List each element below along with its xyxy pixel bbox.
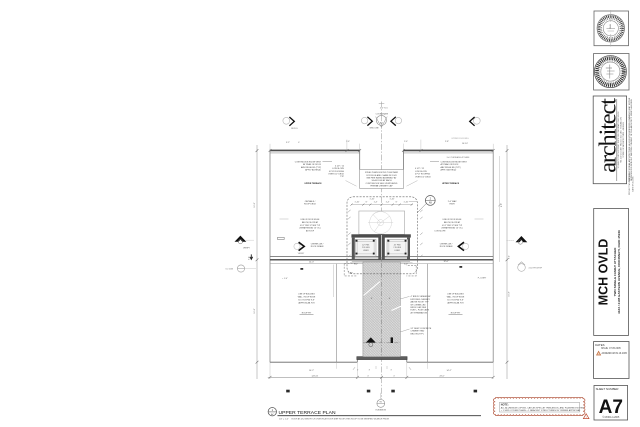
svg-text:5'-0": 5'-0": [354, 263, 358, 265]
svg-text:PREFAB CHIMNEY CAP: PREFAB CHIMNEY CAP: [370, 185, 393, 188]
svg-text:1/4" = 1'-0" ROOF AT 4/12: 1/4" = 1'-0" ROOF AT 4/12 MIN PITCH OVER…: [279, 417, 390, 420]
svg-text:DATES: DATES: [595, 343, 604, 347]
svg-text:16'-8": 16'-8": [254, 202, 256, 207]
svg-text:8'-0": 8'-0": [501, 203, 503, 207]
svg-text:STUDIO OF ARCHITECTURE + DESIG: STUDIO OF ARCHITECTURE + DESIGN: [622, 122, 625, 158]
svg-text:9'-2": 9'-2": [286, 142, 290, 144]
svg-text:ABV RIDGE BD (TYP): ABV RIDGE BD (TYP): [441, 166, 461, 169]
svg-text:BRICK CAP, REF: BRICK CAP, REF: [411, 306, 427, 309]
svg-text:CHIMNEY PAD: CHIMNEY PAD: [411, 330, 425, 333]
svg-text:16'-8": 16'-8": [509, 291, 511, 296]
svg-text:LOW SLOPE: LOW SLOPE: [435, 231, 447, 233]
svg-text:B.O. ROOF AT 9'-8": B.O. ROOF AT 9'-8": [298, 298, 315, 301]
svg-text:ROOF PIT: ROOF PIT: [451, 312, 461, 314]
svg-text:LINE OF BUILDING: LINE OF BUILDING: [447, 294, 464, 296]
svg-text:(SHEATHING AT 16" OC): (SHEATHING AT 16" OC): [442, 227, 463, 230]
svg-text:4 1/2" PER 12" MIN TYP: 4 1/2" PER 12" MIN TYP: [300, 225, 321, 227]
svg-text:2'-8": 2'-8": [445, 141, 449, 143]
svg-text:CONTINUOUS RIDGE VENT: CONTINUOUS RIDGE VENT: [295, 161, 322, 163]
svg-text:24" DEEP CONCRETE: 24" DEEP CONCRETE: [411, 328, 432, 330]
svg-text:HIGH: HIGH: [450, 204, 456, 206]
svg-text:2x6 OVERHANG AT RAKE: 2x6 OVERHANG AT RAKE: [447, 156, 470, 159]
svg-text:GRID LINE: GRID LINE: [369, 128, 379, 130]
svg-text:(24'-0"): (24'-0"): [312, 375, 319, 377]
svg-text:(APPROX) AB. FLR: (APPROX) AB. FLR: [447, 301, 464, 304]
svg-text:LINE OF ROOF EDGE: LINE OF ROOF EDGE: [301, 219, 321, 221]
svg-text:ROOF DRAIN: ROOF DRAIN: [440, 245, 453, 248]
svg-text:5'-4": 5'-4": [249, 256, 251, 260]
svg-text:OVERFLOW /: OVERFLOW /: [440, 243, 453, 245]
svg-text:14'-2": 14'-2": [446, 370, 451, 372]
svg-text:1'-10": 1'-10": [355, 202, 360, 204]
svg-text:ELEV + FLUE CAPS: ELEV + FLUE CAPS: [411, 309, 430, 312]
svg-text:42" FBX: 42" FBX: [394, 244, 402, 246]
svg-text:4" BRICK VENEER AT: 4" BRICK VENEER AT: [411, 295, 432, 298]
svg-text:NOTE:: NOTE:: [501, 404, 509, 407]
svg-text:DATE 07.05.2005: DATE 07.05.2005: [631, 177, 634, 192]
svg-text:4 PLY ROOFING: 4 PLY ROOFING: [329, 171, 345, 173]
svg-text:AT PEAK OF ROOF: AT PEAK OF ROOF: [303, 163, 322, 166]
svg-text:24'-0": 24'-0": [439, 375, 444, 377]
svg-text:1'-4": 1'-4": [386, 202, 390, 204]
svg-text:UPPER TERRACE: UPPER TERRACE: [304, 182, 322, 185]
svg-text:16'-8": 16'-8": [254, 308, 256, 313]
svg-text:CAP: CAP: [348, 272, 353, 275]
svg-text:+ 1'-0": + 1'-0": [282, 278, 288, 280]
svg-text:6": 6": [396, 202, 398, 204]
svg-text:AT ROOF: AT ROOF: [306, 230, 315, 233]
svg-text:121 EAST FOURTH STREET SUITE 1: 121 EAST FOURTH STREET SUITE 100 CINCINN…: [617, 111, 620, 168]
svg-text:© MODA 4-2005: © MODA 4-2005: [602, 416, 620, 419]
svg-text:W/ CORBELLED: W/ CORBELLED: [411, 304, 427, 306]
svg-text:LINE OF ROOF EDGE: LINE OF ROOF EDGE: [443, 219, 463, 221]
svg-text:ABOVE ROOF, TYP: ABOVE ROOF, TYP: [411, 301, 430, 304]
svg-text:ADDENDUM 09.16.2005: ADDENDUM 09.16.2005: [602, 352, 628, 355]
svg-text:ALL ALUMINUM COPING, CAP, AS S: ALL ALUMINUM COPING, CAP, AS SPEC AT TRI…: [501, 406, 585, 409]
svg-text:5'-0": 5'-0": [404, 263, 408, 265]
svg-text:4163 / 4165 EASTERN AVENUE, CI: 4163 / 4165 EASTERN AVENUE, CINCINNATI, …: [617, 230, 621, 314]
svg-text:CATWALK /: CATWALK /: [305, 200, 316, 203]
svg-text:MIN FIRE RATED ASSEMBLY AT: MIN FIRE RATED ASSEMBLY AT: [367, 177, 398, 180]
svg-text:SHEET NUMBER: SHEET NUMBER: [596, 387, 619, 391]
svg-text:(SHEATHING AT 16" OC): (SHEATHING AT 16" OC): [300, 227, 321, 230]
svg-text:PROJECT NO 0434 MCH: PROJECT NO 0434 MCH: [629, 173, 631, 195]
svg-text:LOW SLOPE: LOW SLOPE: [415, 171, 427, 173]
svg-text:TYP: TYP: [340, 176, 345, 178]
svg-text:2 FLUES: 2 FLUES: [393, 247, 401, 249]
svg-text:CONTINUOUS SELF VENTILATED: CONTINUOUS SELF VENTILATED: [366, 182, 398, 185]
svg-text:APPLY AS REQD: APPLY AS REQD: [305, 169, 321, 172]
svg-text:OVER 1/2" DECK: OVER 1/2" DECK: [415, 176, 431, 178]
svg-text:AT PEAK OF ROOF: AT PEAK OF ROOF: [441, 163, 460, 166]
svg-text:UPPER ROOF BRG: UPPER ROOF BRG: [451, 138, 469, 140]
svg-text:TEL 513 621 1400 FAX 513 621: TEL 513 621 1400 FAX 513 621 1401 MODA4.…: [620, 117, 623, 163]
svg-text:LINE OF BUILDING: LINE OF BUILDING: [298, 294, 315, 296]
svg-text:+ 1 SKID COVER PLANS + 1 BRACK: + 1 SKID COVER PLANS + 1 BRACKET STRUCTU…: [501, 409, 581, 412]
svg-text:(APPROX) AB. FLR: (APPROX) AB. FLR: [298, 301, 315, 304]
svg-text:LOW SLOPE: LOW SLOPE: [332, 168, 344, 170]
svg-text:FOR FLUE AND CHASE W/ 1 HR: FOR FLUE AND CHASE W/ 1 HR: [366, 174, 397, 177]
svg-text:2 FLUES: 2 FLUES: [362, 247, 370, 249]
svg-text:P- LIGHT: P- LIGHT: [478, 277, 487, 279]
svg-text:ISSUE 07.05.2005: ISSUE 07.05.2005: [601, 348, 621, 350]
svg-text:OVER 1/2" DECK: OVER 1/2" DECK: [328, 174, 344, 176]
svg-text:BELOW, SLOPE AT: BELOW, SLOPE AT: [302, 221, 319, 224]
svg-text:ABV RIDGE BD (TYP): ABV RIDGE BD (TYP): [301, 166, 321, 169]
svg-text:ROOF DECK: ROOF DECK: [304, 204, 317, 206]
svg-text:OVERFLOW /: OVERFLOW /: [311, 243, 324, 245]
svg-text:AT TERMINATION: AT TERMINATION: [411, 311, 428, 314]
svg-text:ROOF PIT: ROOF PIT: [302, 312, 312, 314]
svg-text:APPLY AS REQD: APPLY AS REQD: [441, 169, 457, 172]
svg-text:LINER: LINER: [363, 250, 369, 252]
svg-text:B.O. ROOF AT 9'-8": B.O. ROOF AT 9'-8": [447, 298, 464, 301]
svg-text:14'-2": 14'-2": [309, 370, 314, 372]
svg-text:VERIFY: VERIFY: [298, 253, 305, 255]
svg-text:WALL / ROOF EDGE: WALL / ROOF EDGE: [447, 296, 465, 299]
svg-text:BELOW (TYP): BELOW (TYP): [411, 333, 424, 335]
svg-text:1/8 R.O.: 1/8 R.O.: [291, 128, 299, 130]
svg-text:1'-10": 1'-10": [370, 199, 375, 201]
svg-text:4 PLY ROOFING: 4 PLY ROOFING: [415, 174, 431, 176]
svg-text:UPPER TERRACE: UPPER TERRACE: [442, 182, 460, 185]
svg-text:4 1/2" / 12: 4 1/2" / 12: [335, 165, 345, 167]
svg-text:4 1/2" / 12: 4 1/2" / 12: [415, 168, 425, 170]
svg-text:MCH OVLD: MCH OVLD: [597, 239, 611, 306]
svg-text:4'-0" R.O.: 4'-0" R.O.: [380, 107, 389, 109]
svg-text:6": 6": [366, 202, 368, 204]
svg-text:5'-4": 5'-4": [509, 255, 511, 259]
svg-text:COORDINATE: COORDINATE: [376, 112, 389, 115]
svg-text:STEEL PLATE BOLTED TOGETHER: STEEL PLATE BOLTED TOGETHER: [365, 171, 399, 174]
svg-text:42" FBX: 42" FBX: [362, 244, 370, 246]
svg-text:4 1/2" PER 12" MIN TYP: 4 1/2" PER 12" MIN TYP: [442, 225, 463, 227]
svg-text:12'-0": 12'-0": [443, 261, 448, 263]
svg-text:WALL / ROOF EDGE: WALL / ROOF EDGE: [298, 296, 316, 299]
svg-text:1'-4": 1'-4": [374, 202, 378, 204]
svg-text:14'-10": 14'-10": [462, 143, 468, 145]
svg-text:12'-0": 12'-0": [309, 262, 314, 264]
svg-text:LINER: LINER: [394, 250, 400, 252]
svg-text:6 x 6 DN: 6 x 6 DN: [226, 268, 234, 270]
svg-text:34x34 FLUE AT EACH: 34x34 FLUE AT EACH: [371, 179, 392, 182]
svg-text:VERIFY: VERIFY: [243, 248, 251, 250]
svg-text:2'-0": 2'-0": [404, 141, 408, 143]
svg-text:1'-10": 1'-10": [390, 199, 395, 201]
svg-text:ROOF DRAIN: ROOF DRAIN: [311, 245, 324, 248]
svg-text:CONTINUOUS RIDGE VENT: CONTINUOUS RIDGE VENT: [441, 161, 468, 163]
svg-text:4 1/2 PITCH RF: 4 1/2 PITCH RF: [529, 268, 543, 270]
svg-text:ELEVATION: ELEVATION: [376, 408, 387, 411]
svg-text:EXPOSED CHIMNEY: EXPOSED CHIMNEY: [411, 299, 431, 301]
svg-text:A7: A7: [599, 397, 623, 418]
svg-text:1'-10": 1'-10": [404, 202, 409, 204]
svg-text:1'-6" MAX: 1'-6" MAX: [448, 200, 458, 203]
svg-text:REPRODUCED WITHOUT WRITTEN CON: REPRODUCED WITHOUT WRITTEN CONSENT OF TH…: [630, 98, 633, 180]
svg-text:BELOW, SLOPE AT: BELOW, SLOPE AT: [444, 221, 461, 224]
svg-text:UPPER TERRACE PLAN: UPPER TERRACE PLAN: [279, 410, 336, 416]
